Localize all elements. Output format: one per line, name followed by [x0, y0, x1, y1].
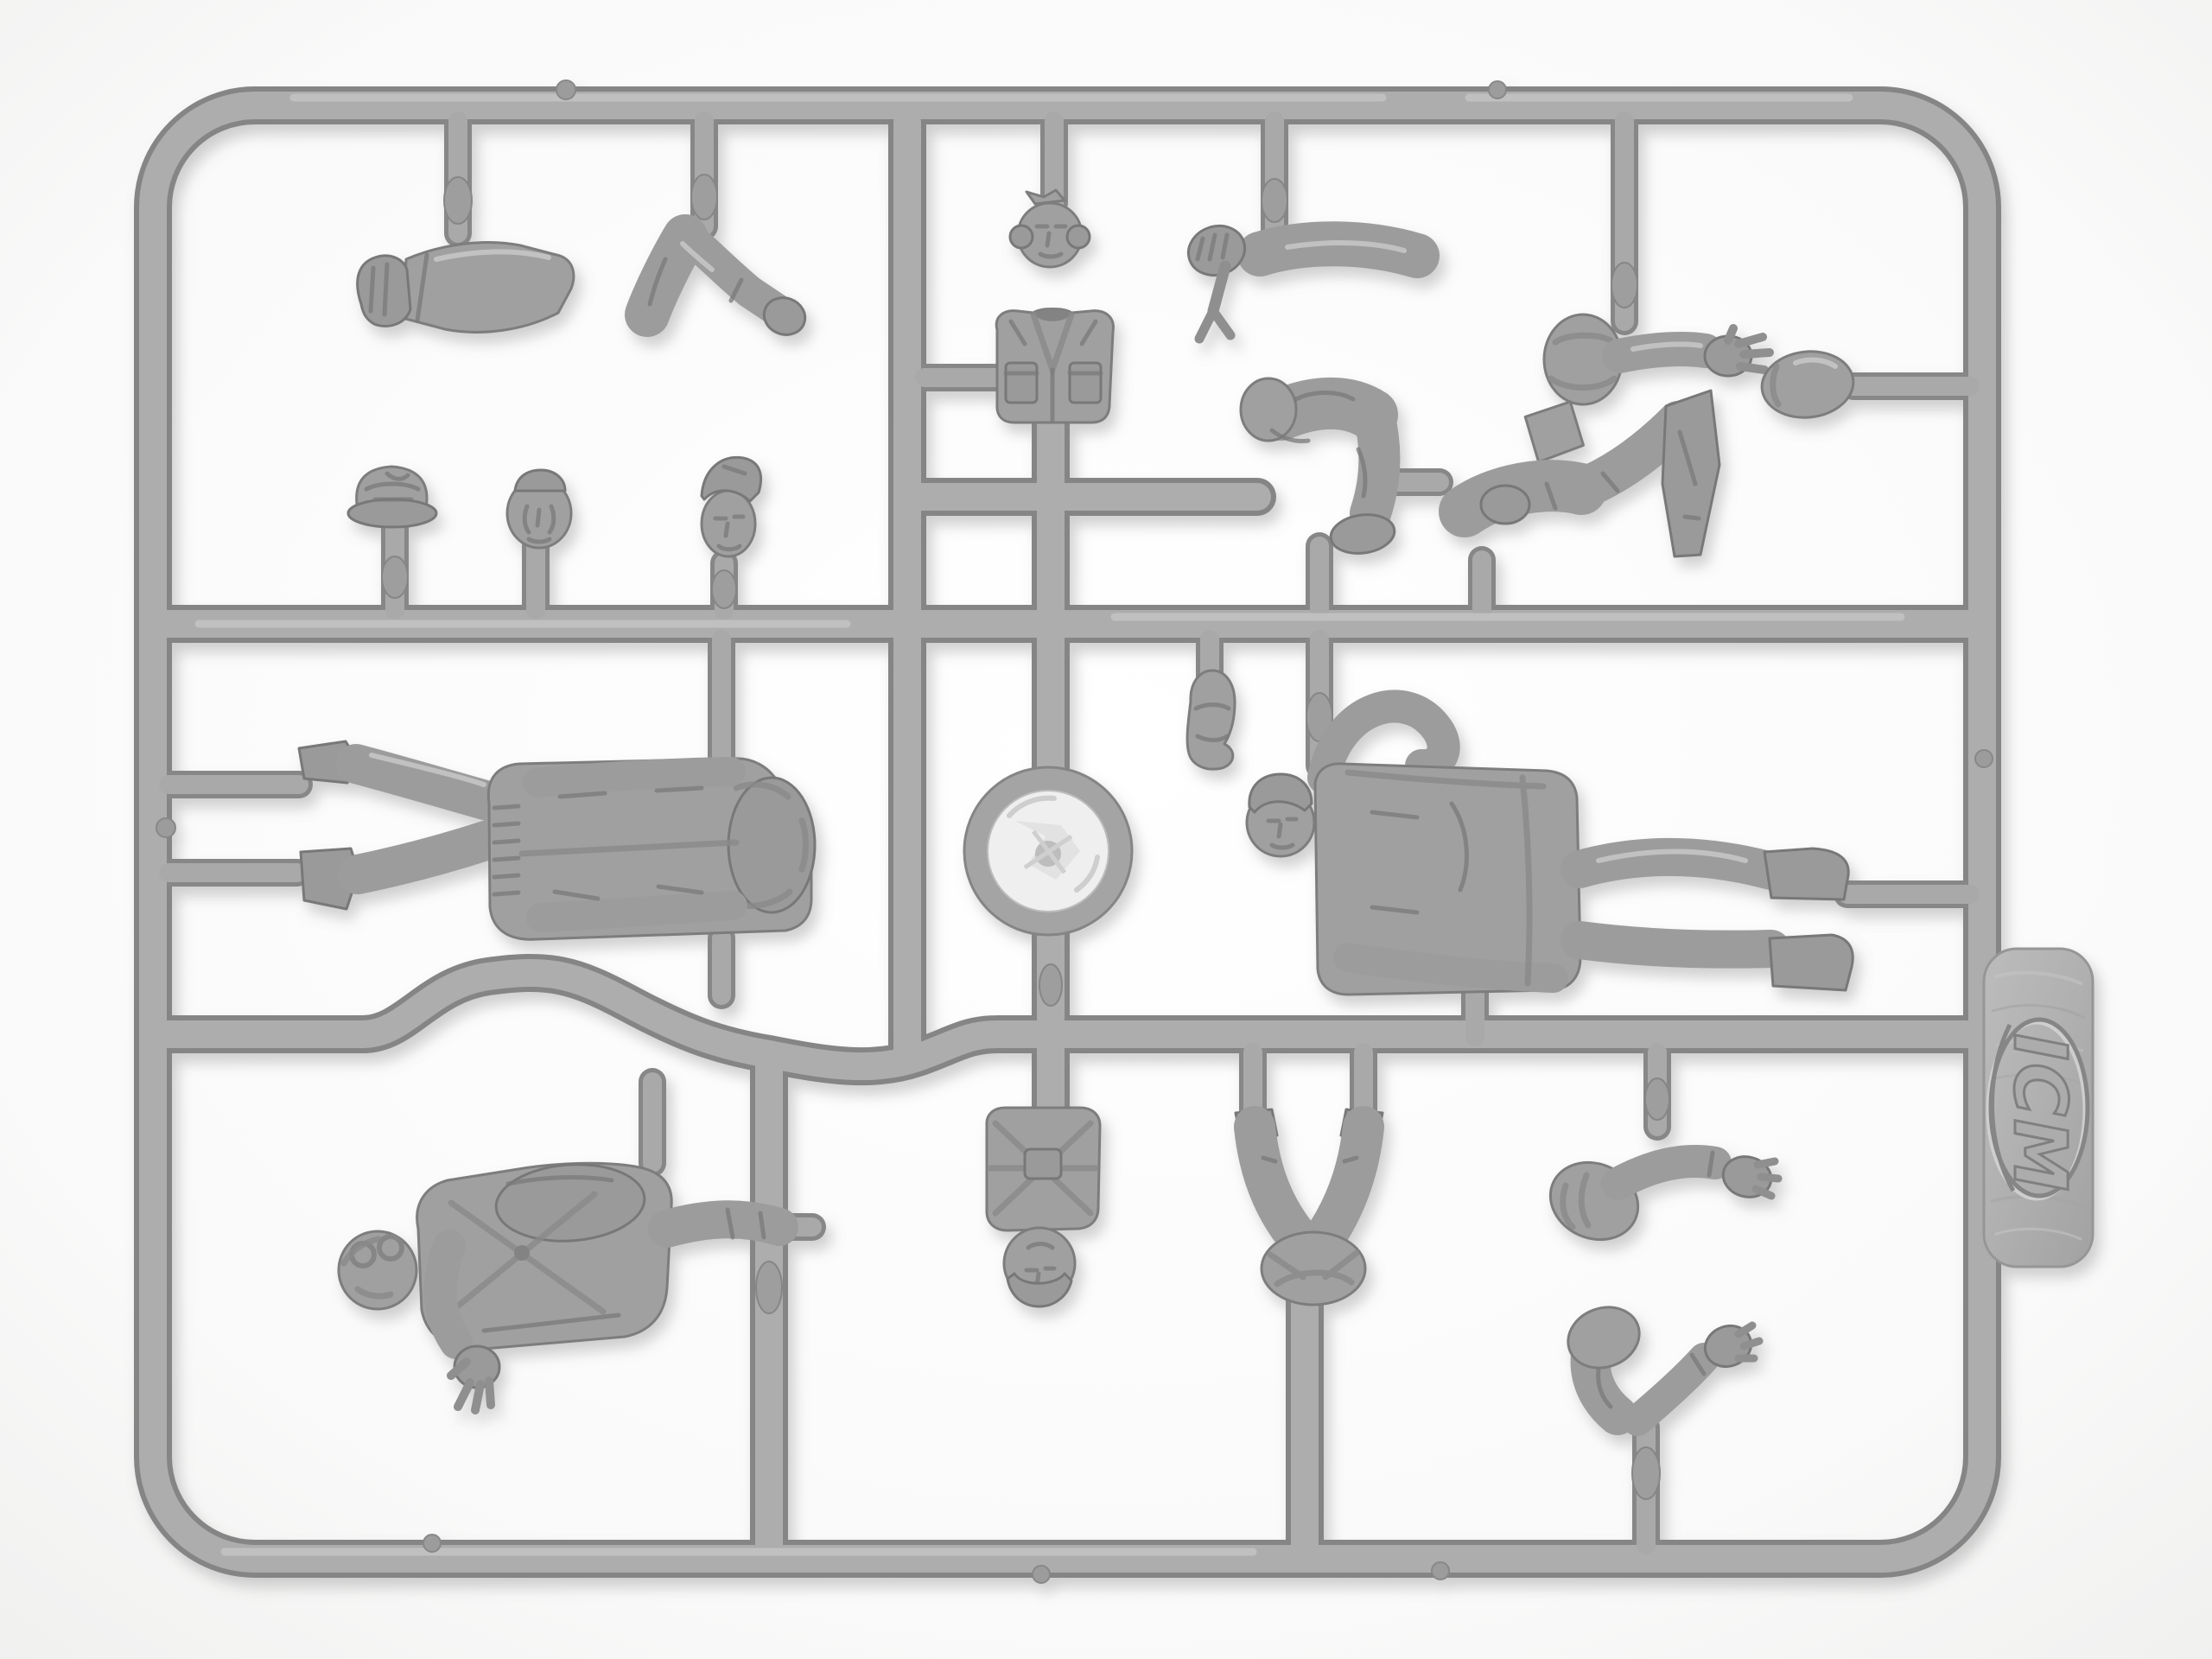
- icm-logo-tab: ICM: [1984, 949, 2093, 1267]
- icm-logo: ICM: [1988, 1020, 2088, 1198]
- field-cap-part: [1187, 671, 1235, 769]
- jacket-vest-part: [996, 309, 1113, 423]
- clear-disc-part: [964, 767, 1132, 935]
- winter-cap-head-part: [507, 470, 571, 548]
- photo-canvas: ICM: [0, 0, 2212, 1659]
- sprue-photo: ICM: [0, 0, 2212, 1659]
- garrison-cap-head-part: [702, 457, 761, 556]
- icm-logo-text: ICM: [1998, 1033, 2082, 1194]
- arm-straight-fist-part: [358, 243, 574, 333]
